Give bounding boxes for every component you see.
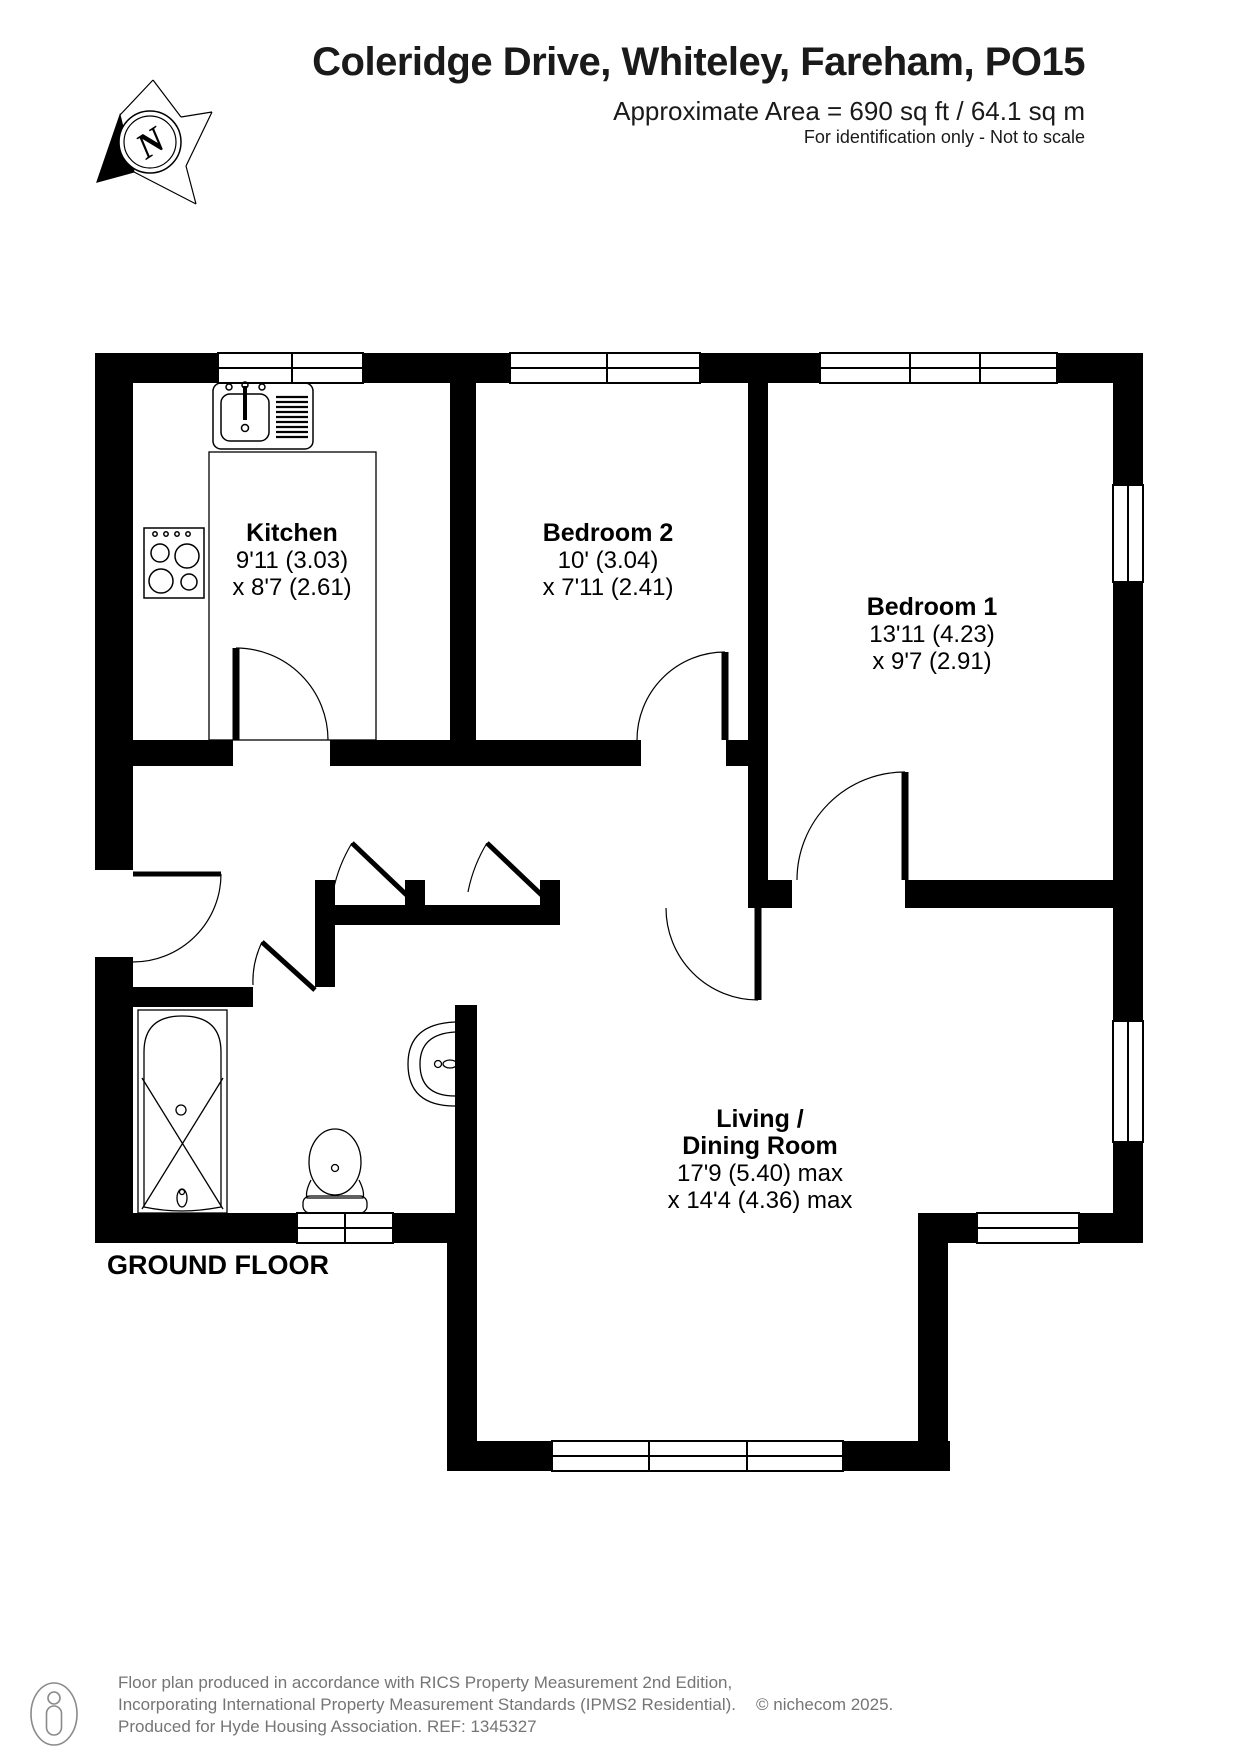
front-door xyxy=(133,874,221,962)
room-name: Kitchen xyxy=(232,520,351,547)
window xyxy=(297,1213,393,1243)
room-dim: 9'11 (3.03) xyxy=(232,547,351,574)
window xyxy=(977,1213,1079,1243)
bedroom1-label: Bedroom 1 13'11 (4.23) x 9'7 (2.91) xyxy=(867,594,998,675)
compass-icon: N xyxy=(97,80,212,204)
room-dim: x 9'7 (2.91) xyxy=(867,648,998,675)
room-dim: x 7'11 (2.41) xyxy=(543,574,674,601)
page-title: Coleridge Drive, Whiteley, Fareham, PO15 xyxy=(312,40,1085,85)
room-dim: 10' (3.04) xyxy=(543,547,674,574)
window xyxy=(218,353,363,383)
footer-line1: Floor plan produced in accordance with R… xyxy=(118,1672,893,1694)
window xyxy=(820,353,1057,383)
room-name: Dining Room xyxy=(668,1133,853,1160)
bedroom1-door xyxy=(797,772,905,880)
window xyxy=(1113,485,1143,582)
window xyxy=(552,1441,843,1471)
copyright-text: © nichecom 2025. xyxy=(756,1695,893,1714)
window xyxy=(1113,1021,1143,1142)
room-dim: 17'9 (5.40) max xyxy=(668,1160,853,1187)
room-name: Living / xyxy=(668,1106,853,1133)
room-name: Bedroom 1 xyxy=(867,594,998,621)
window xyxy=(510,353,700,383)
person-icon xyxy=(28,1680,88,1750)
cupboard-door xyxy=(468,843,550,903)
room-name: Bedroom 2 xyxy=(543,520,674,547)
room-dim: x 14'4 (4.36) max xyxy=(668,1187,853,1214)
floorplan-page: N xyxy=(0,0,1241,1755)
kitchen-label: Kitchen 9'11 (3.03) x 8'7 (2.61) xyxy=(232,520,351,601)
scale-note: For identification only - Not to scale xyxy=(804,127,1085,148)
floor-plan: N xyxy=(0,0,1241,1755)
bathroom-door xyxy=(253,942,315,990)
bedroom2-label: Bedroom 2 10' (3.04) x 7'11 (2.41) xyxy=(543,520,674,601)
cupboard-door xyxy=(333,843,415,903)
bedroom2-door xyxy=(637,652,725,740)
footer-line3: Produced for Hyde Housing Association. R… xyxy=(118,1716,893,1738)
sink-icon xyxy=(408,1022,457,1106)
toilet-icon xyxy=(303,1129,367,1213)
approximate-area: Approximate Area = 690 sq ft / 64.1 sq m xyxy=(613,96,1085,127)
room-dim: 13'11 (4.23) xyxy=(867,621,998,648)
bath-icon xyxy=(138,1010,227,1213)
living-dining-label: Living / Dining Room 17'9 (5.40) max x 1… xyxy=(668,1106,853,1214)
doors xyxy=(133,648,905,1000)
footer-disclaimer: Floor plan produced in accordance with R… xyxy=(118,1672,893,1738)
living-room-door xyxy=(666,908,758,1000)
room-dim: x 8'7 (2.61) xyxy=(232,574,351,601)
kitchen-sink-icon xyxy=(213,382,313,449)
floor-title: GROUND FLOOR xyxy=(107,1250,329,1281)
footer-line2: Incorporating International Property Mea… xyxy=(118,1695,736,1714)
hob-icon xyxy=(144,528,204,598)
bathroom-fixtures xyxy=(138,1010,457,1213)
kitchen-door xyxy=(236,648,328,740)
